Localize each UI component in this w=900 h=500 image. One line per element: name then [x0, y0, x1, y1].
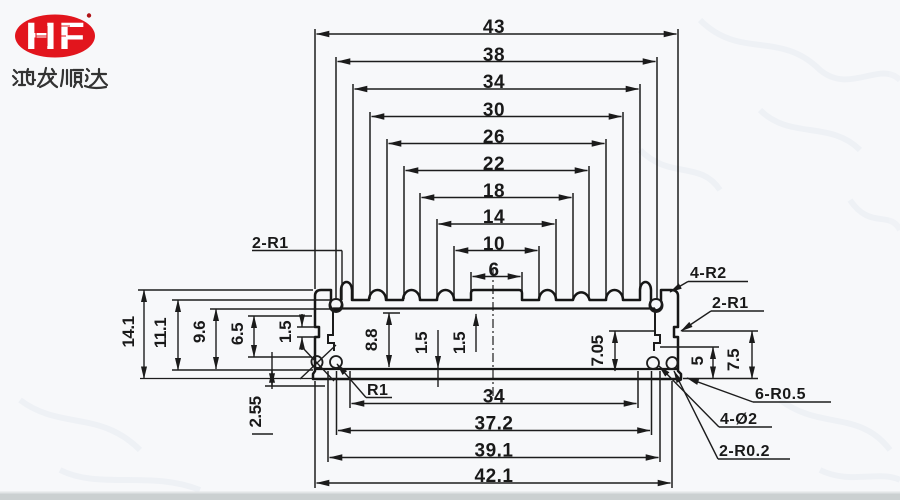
svg-text:37.2: 37.2: [475, 414, 514, 435]
svg-text:38: 38: [483, 45, 505, 66]
svg-text:42.1: 42.1: [475, 466, 514, 487]
svg-text:6: 6: [488, 260, 499, 281]
svg-text:26: 26: [483, 127, 505, 148]
svg-text:4-Ø2: 4-Ø2: [720, 411, 758, 428]
svg-text:8.8: 8.8: [362, 329, 381, 351]
svg-text:34: 34: [483, 387, 505, 408]
svg-text:4-R2: 4-R2: [690, 265, 727, 282]
svg-text:22: 22: [483, 154, 505, 175]
svg-text:1.5: 1.5: [412, 332, 431, 354]
svg-text:1.5: 1.5: [276, 321, 295, 343]
svg-text:34: 34: [483, 72, 505, 93]
svg-text:30: 30: [483, 100, 505, 121]
svg-text:39.1: 39.1: [475, 441, 514, 462]
svg-text:1.5: 1.5: [450, 332, 469, 354]
svg-text:6.5: 6.5: [228, 323, 247, 345]
svg-text:R1: R1: [367, 382, 388, 399]
svg-text:7.05: 7.05: [588, 335, 607, 366]
svg-text:2.55: 2.55: [246, 396, 265, 427]
svg-text:14.1: 14.1: [119, 316, 138, 347]
svg-text:18: 18: [483, 181, 505, 202]
svg-text:9.6: 9.6: [190, 321, 209, 343]
svg-text:43: 43: [483, 17, 505, 38]
svg-text:11.1: 11.1: [151, 318, 170, 348]
svg-text:2-R1: 2-R1: [712, 295, 749, 312]
svg-text:14: 14: [483, 207, 505, 228]
svg-text:5: 5: [688, 356, 707, 365]
svg-text:2-R0.2: 2-R0.2: [719, 443, 770, 460]
svg-text:10: 10: [483, 234, 505, 255]
svg-text:7.5: 7.5: [724, 349, 743, 371]
svg-text:2-R1: 2-R1: [252, 235, 289, 252]
svg-text:6-R0.5: 6-R0.5: [755, 386, 806, 403]
